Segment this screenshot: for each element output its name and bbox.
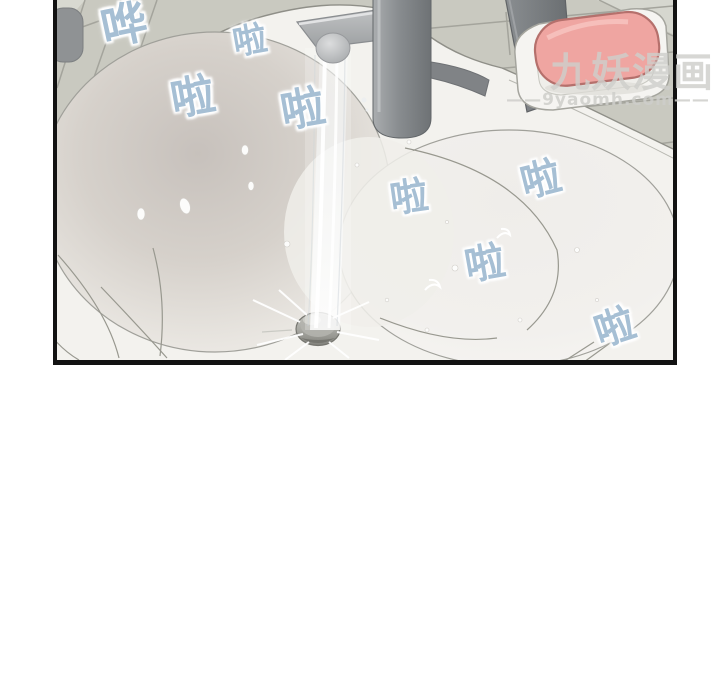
soap-dish [515,9,669,110]
sfx-hua: 哗 [97,0,152,52]
faucet-body [373,0,431,138]
faucet-nozzle [316,33,350,63]
sfx-la-2: 啦 [168,73,219,124]
sfx-la-6: 啦 [462,241,508,287]
wall-corner-object [57,8,83,62]
sfx-la-4: 啦 [388,176,431,219]
sfx-la-3: 啦 [278,85,329,136]
sfx-la-1: 啦 [230,21,269,60]
sink-scene-art [57,0,673,360]
comic-panel: 哗 啦 啦 啦 啦 啦 啦 啦 [53,0,677,365]
